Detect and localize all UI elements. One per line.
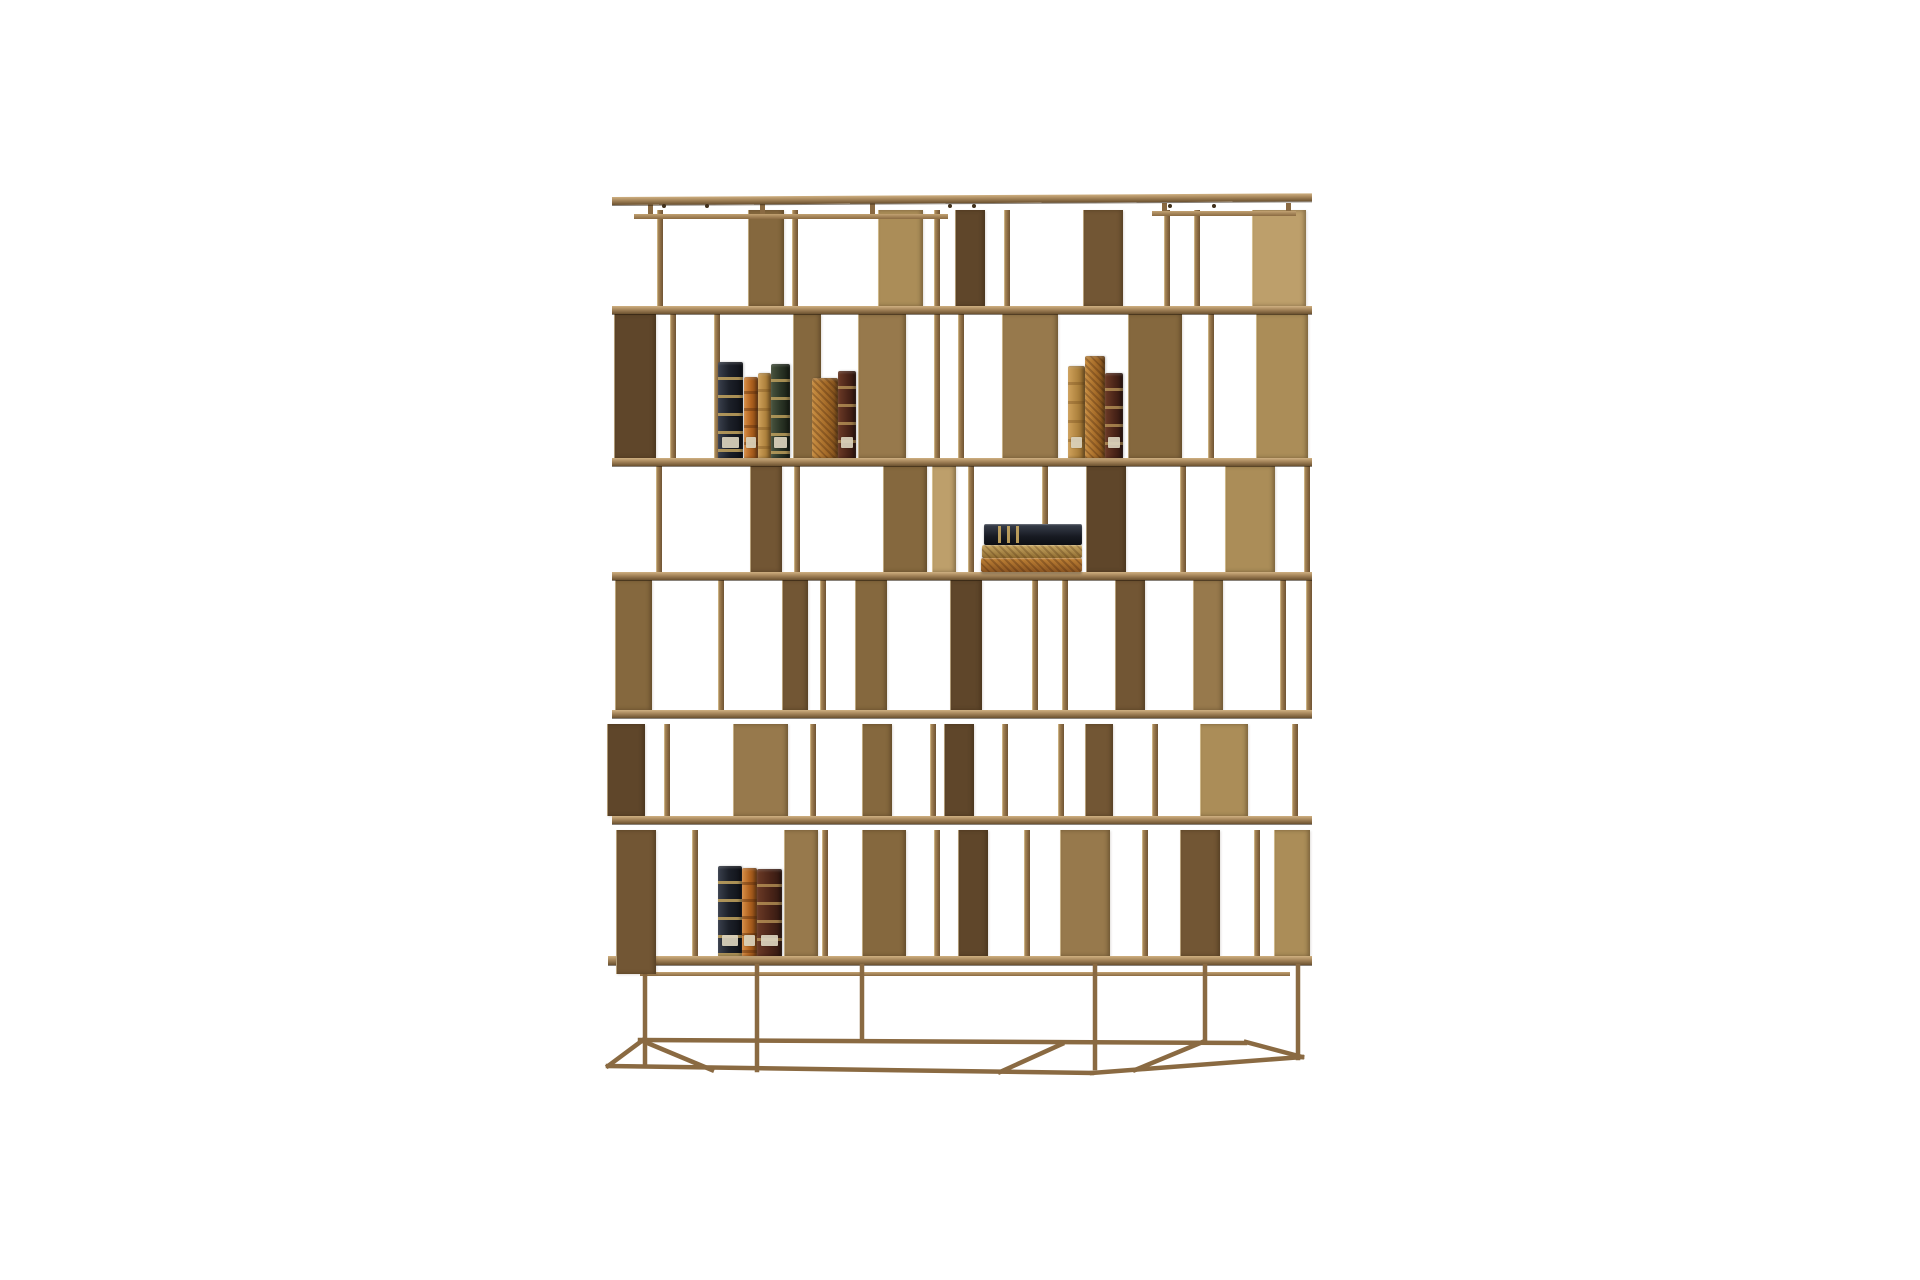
book-flat (984, 524, 1082, 545)
metal-post (792, 210, 798, 306)
metal-panel (1225, 466, 1275, 572)
metal-panel (748, 210, 784, 306)
metal-panel (1252, 210, 1306, 306)
book-label (1071, 437, 1083, 448)
book-spine (812, 378, 838, 458)
metal-panel (1085, 724, 1113, 816)
metal-post (1152, 724, 1158, 816)
cap-screw (948, 204, 952, 208)
metal-panel (616, 830, 656, 974)
metal-panel (958, 830, 988, 956)
base-frame-line (608, 1066, 1092, 1073)
metal-post (822, 830, 828, 956)
metal-panel (944, 724, 974, 816)
book-spine (838, 371, 856, 458)
metal-panel (1086, 466, 1126, 572)
metal-panel (1060, 830, 1110, 956)
metal-post (657, 210, 663, 306)
book-spine (1105, 373, 1123, 458)
book-spine (771, 364, 790, 458)
shelf-bar (612, 816, 1312, 824)
metal-post (1002, 724, 1008, 816)
book-spine (718, 866, 742, 956)
metal-post (1306, 580, 1312, 710)
book-label (774, 437, 787, 448)
metal-panel (1128, 314, 1182, 458)
metal-panel (932, 466, 956, 572)
top-cap (612, 193, 1312, 205)
metal-post (794, 466, 800, 572)
metal-panel (750, 466, 782, 572)
book-spine (718, 362, 743, 458)
shelf-subrail (640, 972, 1290, 976)
metal-post (968, 466, 974, 572)
metal-panel (855, 580, 887, 710)
metal-post (1292, 724, 1298, 816)
shelf-bar (612, 572, 1312, 580)
metal-post (664, 724, 670, 816)
base-frame-line (1246, 1042, 1302, 1057)
book-spine (744, 377, 758, 458)
metal-panel (1256, 314, 1308, 458)
base-frame-line (1000, 1044, 1062, 1072)
metal-post (1180, 466, 1186, 572)
shelf-bar (608, 956, 1312, 965)
metal-post (1062, 580, 1068, 710)
metal-panel (862, 724, 892, 816)
book-spine (742, 868, 757, 956)
book-label (841, 437, 854, 448)
bookshelf-product-photo (0, 0, 1920, 1280)
book-label (722, 935, 739, 946)
metal-panel (1193, 580, 1223, 710)
metal-post (810, 724, 816, 816)
shelf-bar (612, 458, 1312, 466)
metal-post (820, 580, 826, 710)
base-frame-line (645, 1042, 712, 1070)
metal-panel (607, 724, 645, 816)
book-spine (757, 869, 782, 956)
book-flat (982, 545, 1082, 558)
shelf-bar (612, 710, 1312, 718)
metal-post (1058, 724, 1064, 816)
book-label (1108, 437, 1121, 448)
cap-screw (1168, 204, 1172, 208)
book-flat (981, 558, 1082, 572)
shelf-subrail (1152, 211, 1296, 216)
cap-screw (1212, 204, 1216, 208)
base-frame-line (640, 1040, 1245, 1043)
metal-post (1032, 580, 1038, 710)
metal-post (1254, 830, 1260, 956)
book-spine-ribs (992, 526, 1022, 543)
metal-panel (1180, 830, 1220, 956)
book-spine (1085, 356, 1105, 458)
metal-post (934, 314, 940, 458)
metal-post (1304, 466, 1310, 572)
metal-panel (1115, 580, 1145, 710)
metal-post (692, 830, 698, 956)
metal-panel (1083, 210, 1123, 306)
metal-post (1208, 314, 1214, 458)
metal-post (1164, 210, 1170, 306)
base-frame-line (608, 1040, 643, 1066)
book-label (722, 437, 740, 448)
metal-panel (1274, 830, 1310, 956)
metal-post (1280, 580, 1286, 710)
base-frame-line (1135, 1041, 1205, 1070)
book-label (761, 935, 779, 946)
metal-post (958, 314, 964, 458)
metal-panel (782, 580, 808, 710)
metal-post (656, 466, 662, 572)
metal-panel (878, 210, 923, 306)
metal-post (670, 314, 676, 458)
metal-panel (862, 830, 906, 956)
base-frame-line (1092, 1057, 1302, 1073)
metal-post (934, 210, 940, 306)
metal-panel (614, 314, 656, 458)
metal-post (930, 724, 936, 816)
metal-panel (615, 580, 652, 710)
metal-post (1142, 830, 1148, 956)
book-spine (1068, 366, 1085, 458)
metal-post (718, 580, 724, 710)
metal-panel (1002, 314, 1058, 458)
shelf-bar (612, 306, 1312, 314)
metal-panel (784, 830, 818, 956)
cap-screw (705, 204, 709, 208)
book-label (746, 437, 756, 448)
book-spine (758, 373, 771, 458)
metal-post (1194, 210, 1200, 306)
metal-post (1024, 830, 1030, 956)
metal-panel (955, 210, 985, 306)
book-label (744, 935, 755, 946)
cap-screw (662, 204, 666, 208)
cap-screw (972, 204, 976, 208)
metal-panel (883, 466, 927, 572)
metal-panel (858, 314, 906, 458)
metal-panel (1200, 724, 1248, 816)
metal-panel (733, 724, 788, 816)
metal-panel (950, 580, 982, 710)
shelf-subrail (634, 214, 948, 219)
metal-post (1004, 210, 1010, 306)
metal-post (934, 830, 940, 956)
